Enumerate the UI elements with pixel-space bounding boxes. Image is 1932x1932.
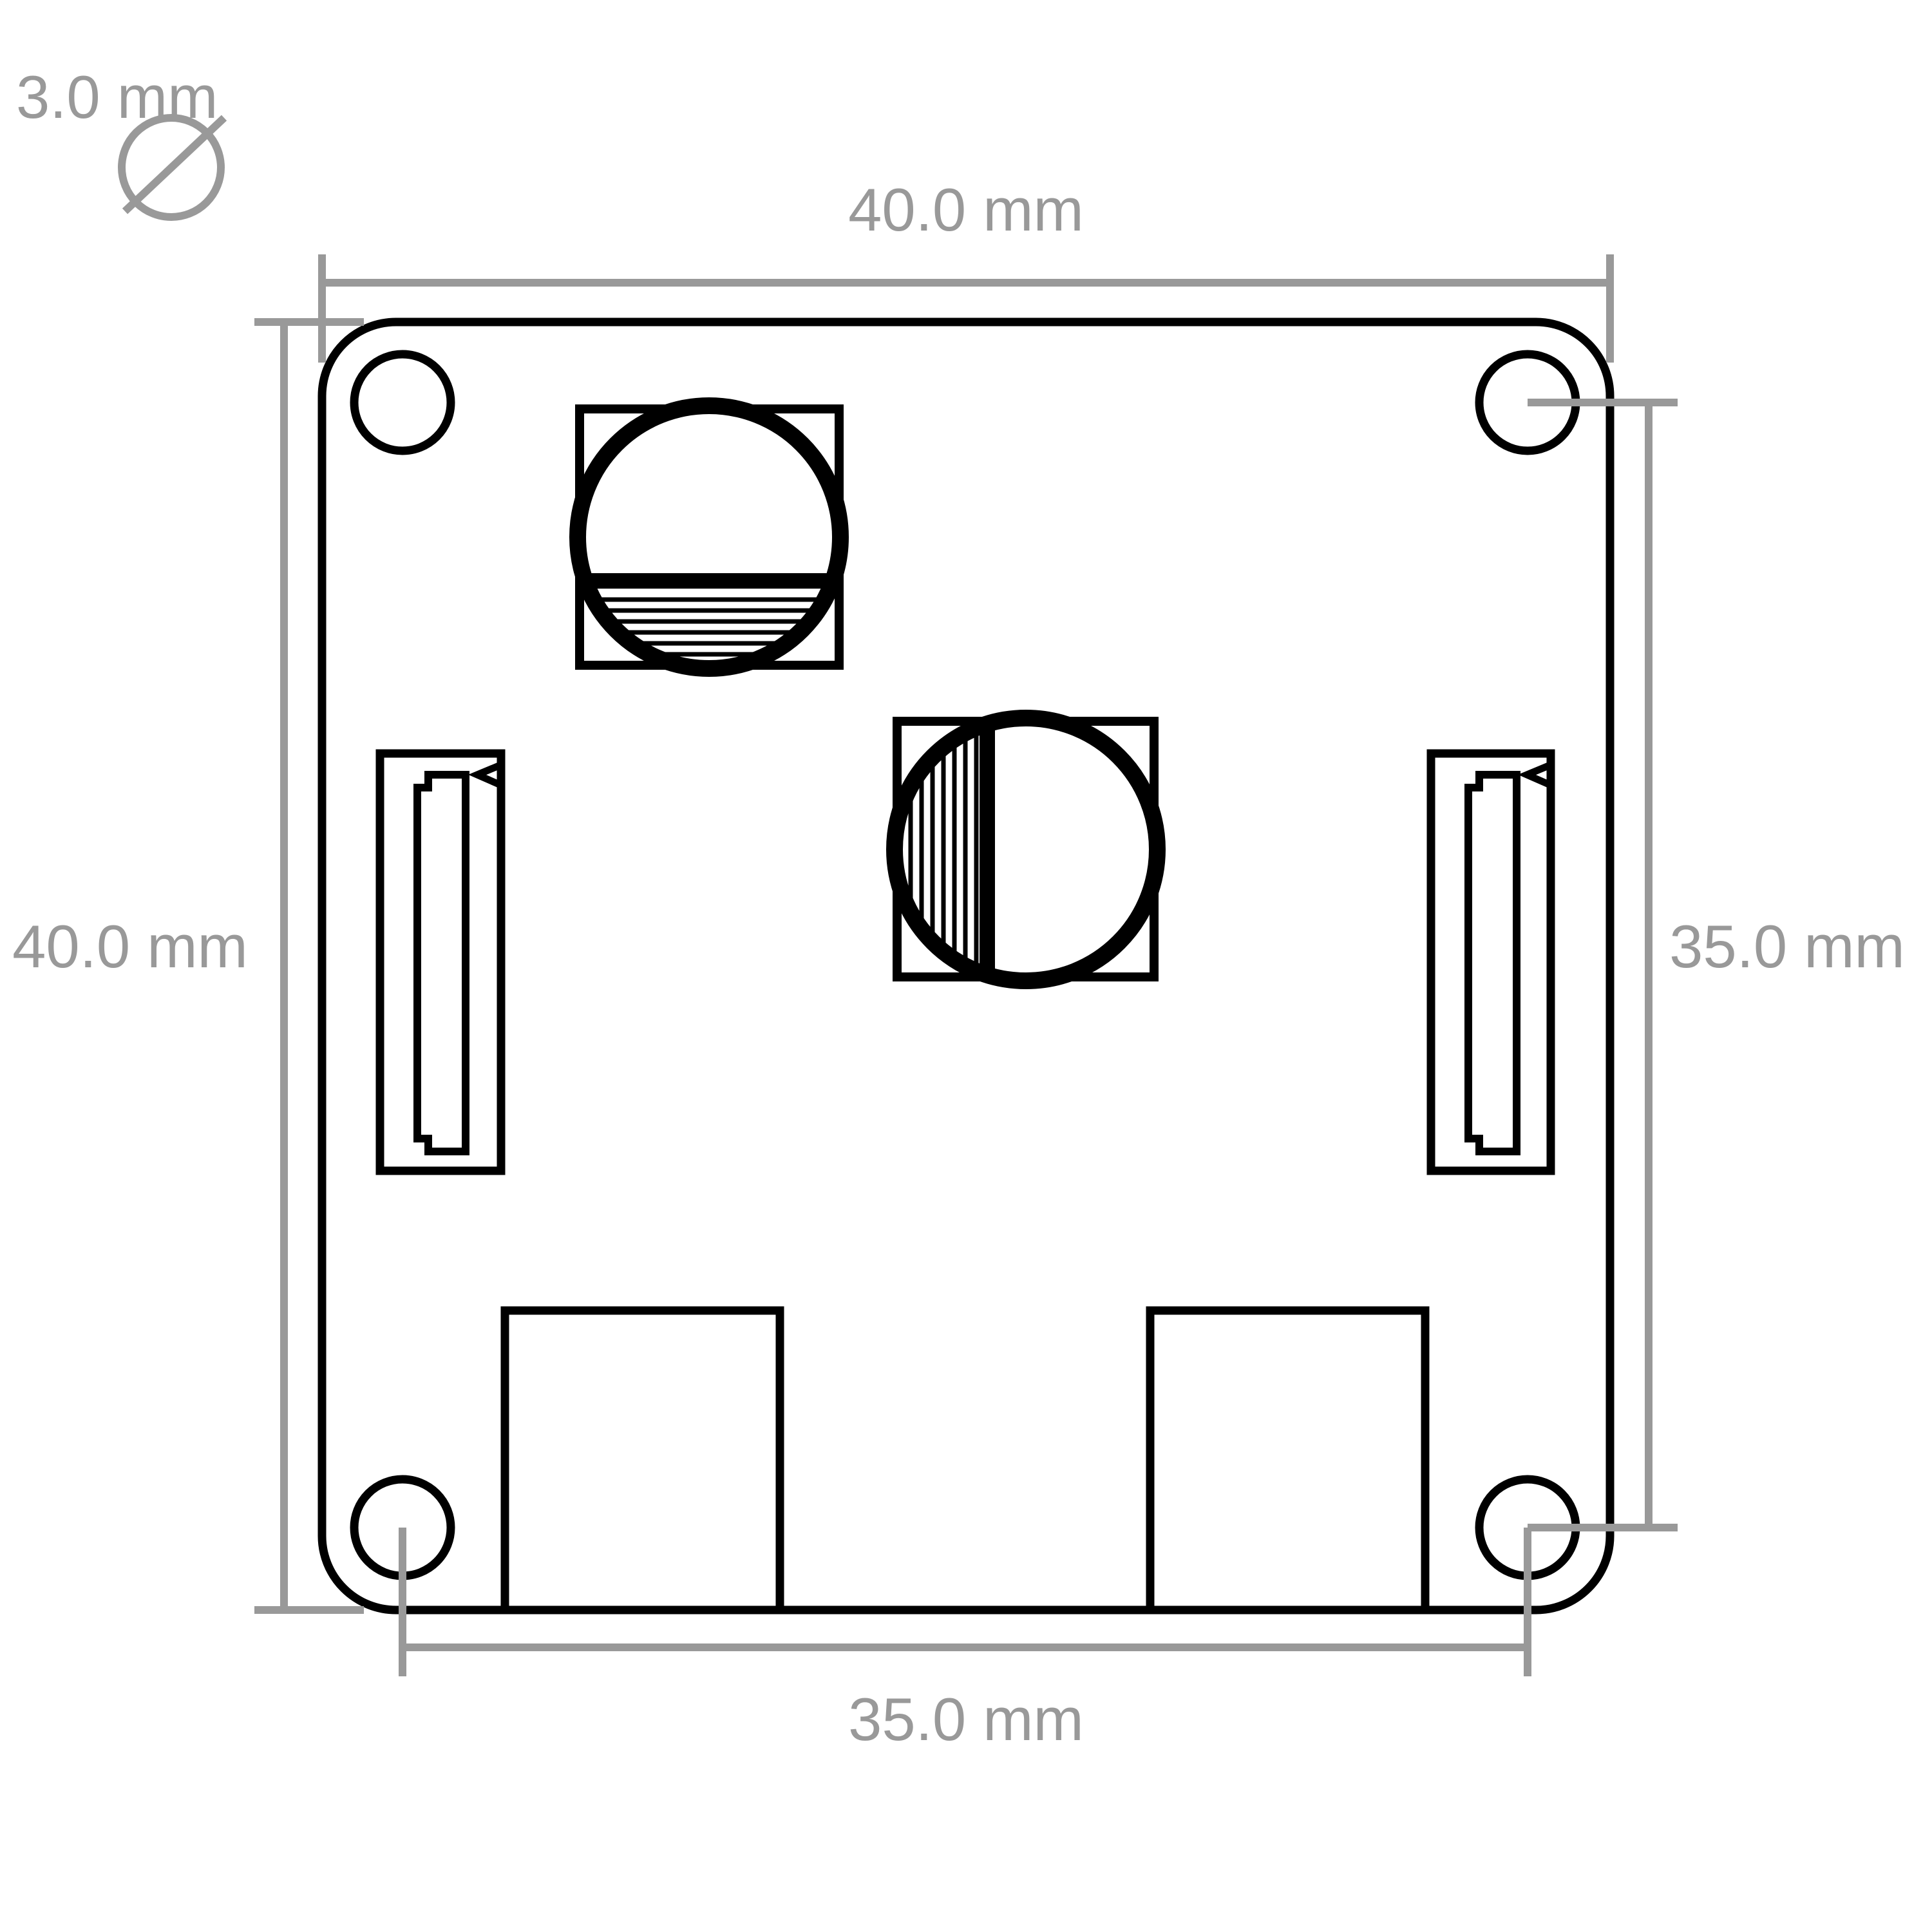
left-connector-outline <box>380 753 501 1171</box>
board-width-label: 40.0 mm <box>848 176 1084 243</box>
camera1-circle <box>578 406 840 668</box>
bottom-pad-left <box>505 1311 780 1610</box>
hole-spacing-vertical-label: 35.0 mm <box>1669 913 1905 980</box>
dimension-drawing: 3.0 mm 40.0 mm 40.0 mm 35.0 mm 35.0 mm <box>0 0 1932 1932</box>
right-connector-keyed-slot <box>1468 775 1517 1151</box>
drawing-shape-layer <box>122 118 1678 1676</box>
right-connector-outline <box>1431 753 1551 1171</box>
hole-spacing-horizontal-label: 35.0 mm <box>848 1685 1084 1753</box>
mounting-hole-top-left <box>354 354 451 451</box>
bottom-pad-right <box>1150 1311 1425 1610</box>
hole-diameter-label: 3.0 mm <box>16 63 218 131</box>
board-height-label: 40.0 mm <box>12 913 248 980</box>
left-connector-keyed-slot <box>417 775 466 1151</box>
